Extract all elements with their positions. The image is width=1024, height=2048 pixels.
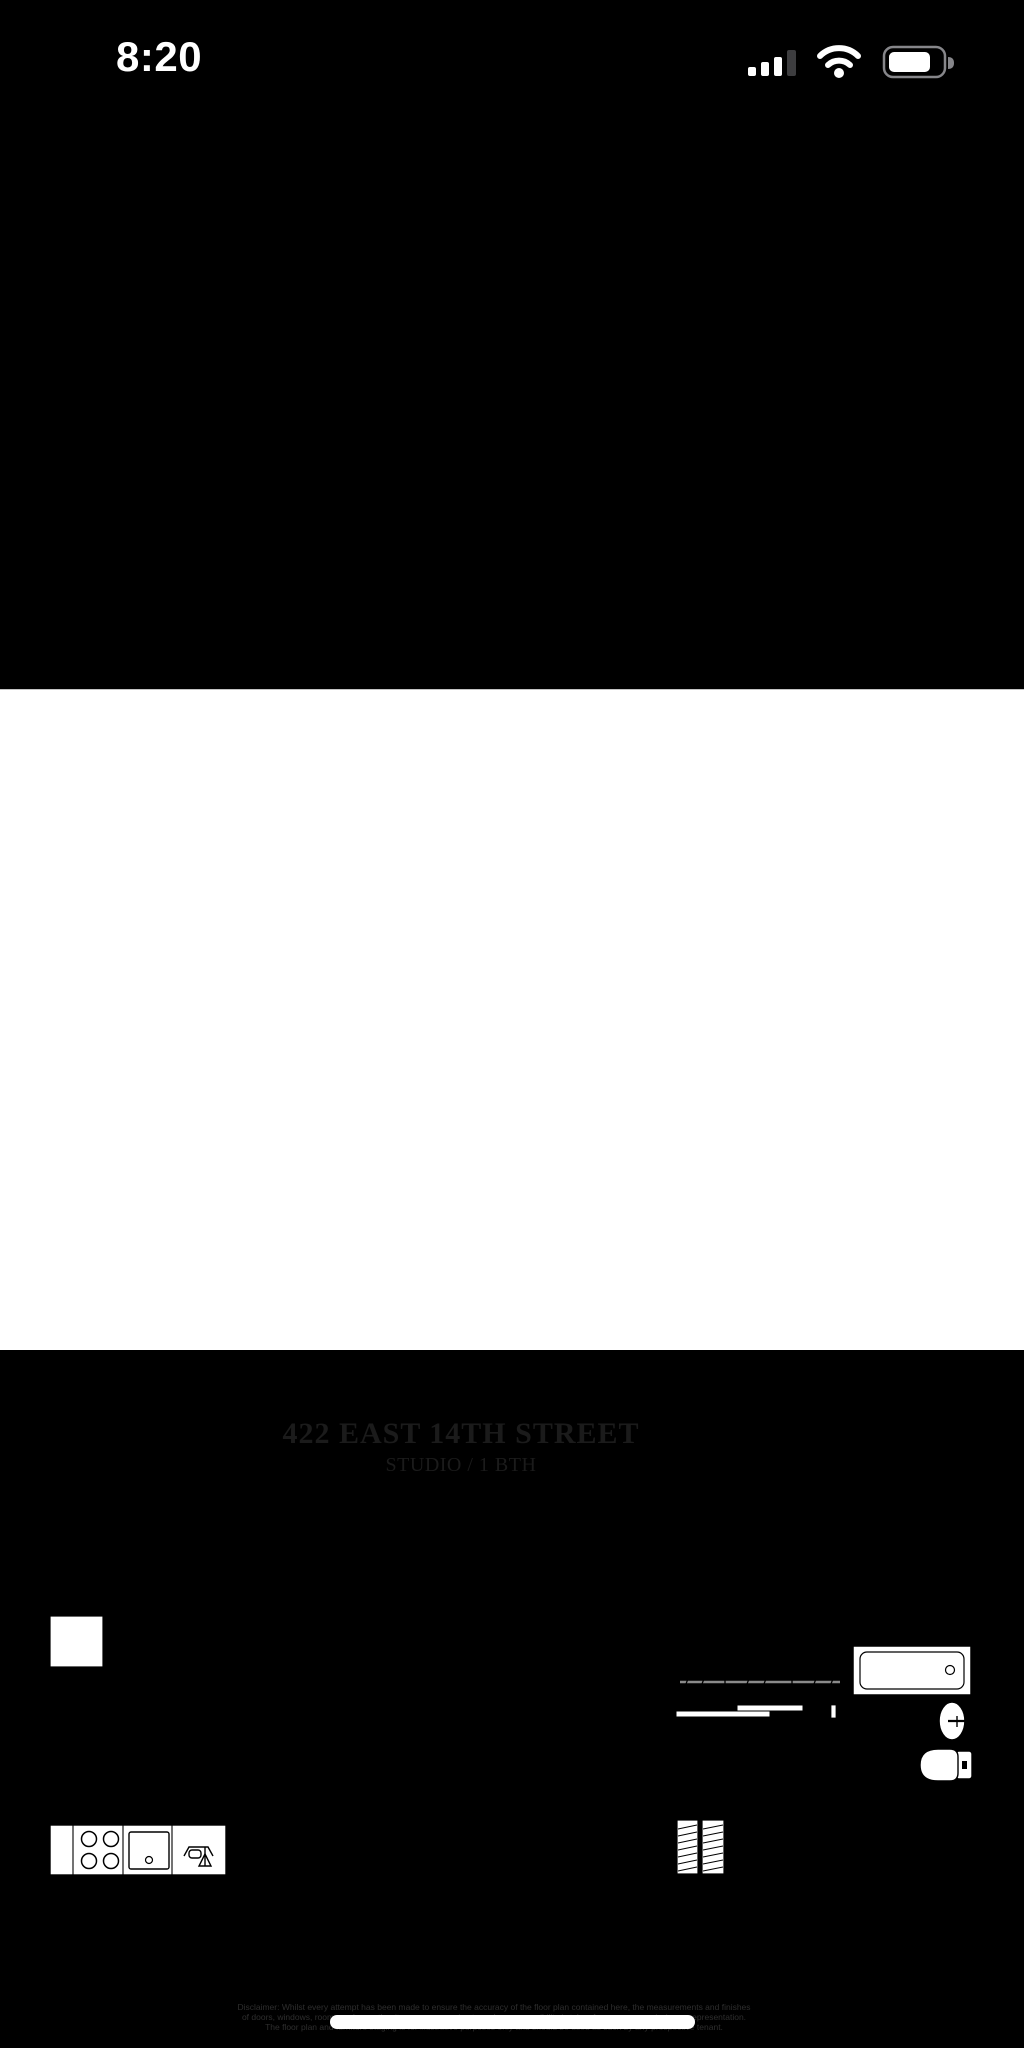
window-upper [36,1665,50,1727]
kitchen-sink-icon [129,1832,169,1869]
cellular-signal-icon [748,50,796,76]
bathroom-door [847,1730,896,1778]
hanger-marks [680,1668,837,1700]
wifi-icon [820,48,858,78]
status-icons [0,0,1024,100]
sliding-doors [676,1705,847,1718]
toilet-icon [920,1749,972,1781]
battery-icon [884,47,954,77]
corner-closet [50,1616,103,1667]
floor-plan [0,1379,1024,2039]
photo-image[interactable]: 422 EAST 14TH STREET STUDIO / 1 BTH [0,689,1024,1350]
disclaimer-line: Disclaimer: Whilst every attempt has bee… [144,2002,844,2012]
wardrobe-closet [676,1661,847,1718]
window-lower [36,1750,50,1825]
home-indicator[interactable] [330,2015,695,2029]
entry-shelving [677,1820,724,1874]
bathtub-icon [853,1646,971,1695]
entry-door [609,1822,663,1874]
hallway-door [763,1740,827,1786]
